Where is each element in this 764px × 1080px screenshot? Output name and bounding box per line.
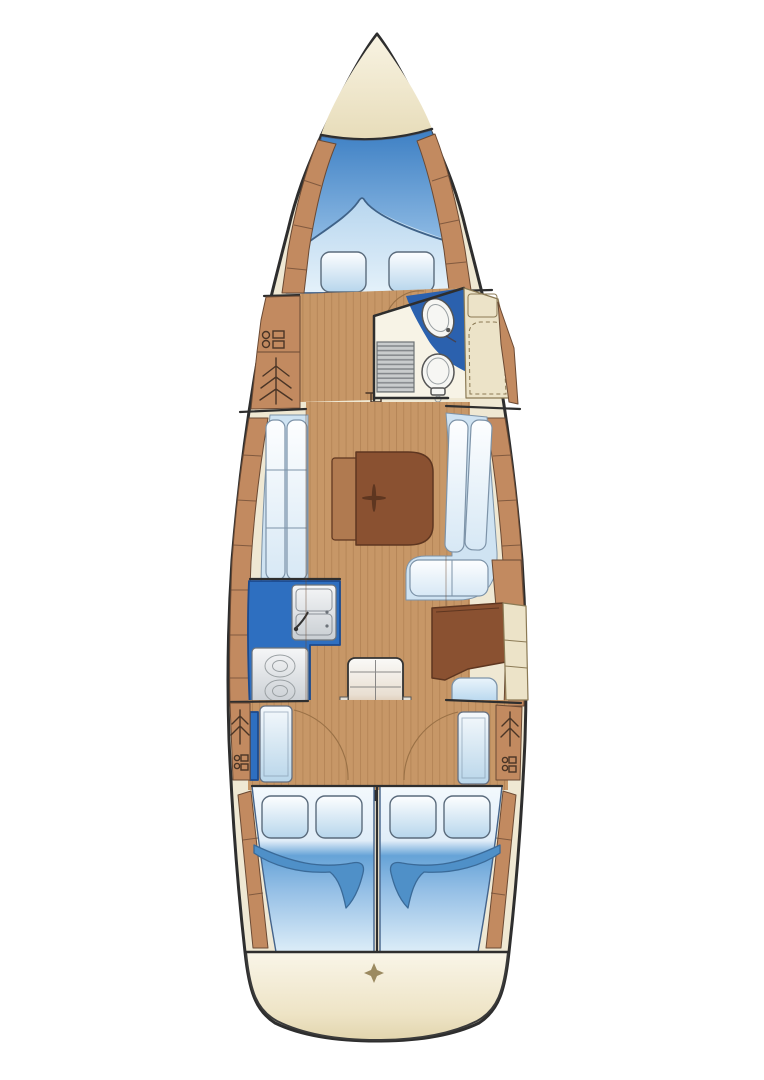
sailboat-floor-plan [0, 0, 764, 1080]
starboard-settee-seat-cushion [445, 420, 469, 553]
aft-cabins [238, 786, 516, 952]
nav-locker-column [503, 603, 528, 700]
port-settee-seat-cushion [287, 420, 307, 580]
aft-cabin-door-starboard [458, 712, 489, 784]
anchor-locker [321, 36, 432, 139]
v-berth-pillow-port [321, 252, 366, 292]
galley-stove [252, 648, 308, 705]
port-berth-pillow-outboard [262, 796, 308, 838]
port-settee-back-cushion [266, 420, 285, 580]
port-cabinet [257, 296, 300, 352]
galley-twin-sink [292, 585, 336, 640]
starboard-berth-pillow-inboard [390, 796, 436, 838]
nav-shelf [492, 560, 524, 608]
l-settee-corner-cushion [410, 560, 488, 596]
anchor-locker-floor [321, 36, 432, 139]
aft-cabin-door-port [260, 706, 292, 782]
port-forward-lockers [251, 296, 300, 409]
shower-grate [377, 342, 414, 392]
port-counter-end [250, 712, 258, 780]
port-berth-pillow-inboard [316, 796, 362, 838]
forward-cabin [264, 131, 492, 310]
boat-floor-plan-canvas [0, 0, 764, 1080]
starboard-berth-pillow-outboard [444, 796, 490, 838]
aft-passage [230, 700, 522, 790]
v-berth-pillow-starboard [389, 252, 434, 292]
